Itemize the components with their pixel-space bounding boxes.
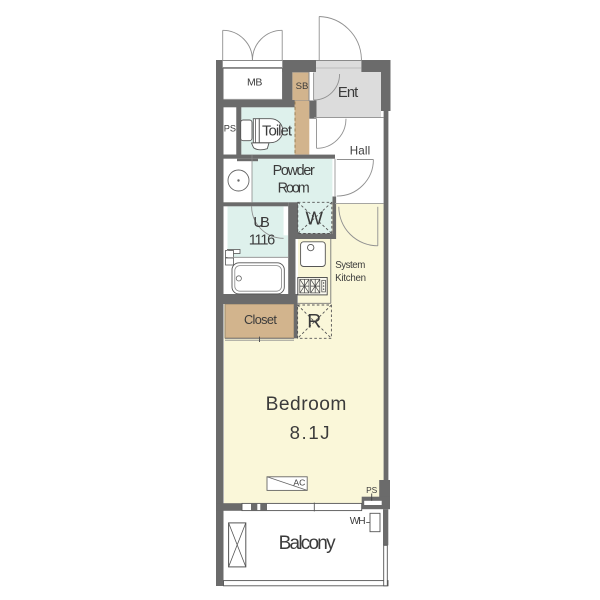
svg-text:MB: MB bbox=[247, 77, 262, 89]
svg-text:Ent: Ent bbox=[338, 85, 358, 101]
svg-text:PS: PS bbox=[366, 485, 378, 495]
svg-text:W: W bbox=[306, 207, 324, 228]
svg-text:WH: WH bbox=[350, 516, 366, 527]
svg-text:Bedroom: Bedroom bbox=[266, 394, 347, 415]
svg-text:Toilet: Toilet bbox=[262, 122, 293, 139]
svg-text:Hall: Hall bbox=[350, 144, 371, 157]
svg-text:Closet: Closet bbox=[244, 313, 277, 327]
svg-text:System: System bbox=[335, 260, 365, 271]
svg-text:1116: 1116 bbox=[249, 232, 276, 248]
svg-text:Balcony: Balcony bbox=[279, 533, 337, 554]
svg-text:Powder: Powder bbox=[273, 163, 315, 179]
svg-text:R: R bbox=[307, 312, 321, 333]
svg-text:Kitchen: Kitchen bbox=[335, 273, 366, 284]
svg-text:Room: Room bbox=[278, 181, 310, 197]
svg-text:8.1J: 8.1J bbox=[290, 422, 330, 443]
svg-text:PS: PS bbox=[224, 123, 236, 133]
svg-text:SB: SB bbox=[296, 81, 309, 92]
svg-text:AC: AC bbox=[293, 477, 305, 487]
svg-text:UB: UB bbox=[253, 215, 270, 231]
